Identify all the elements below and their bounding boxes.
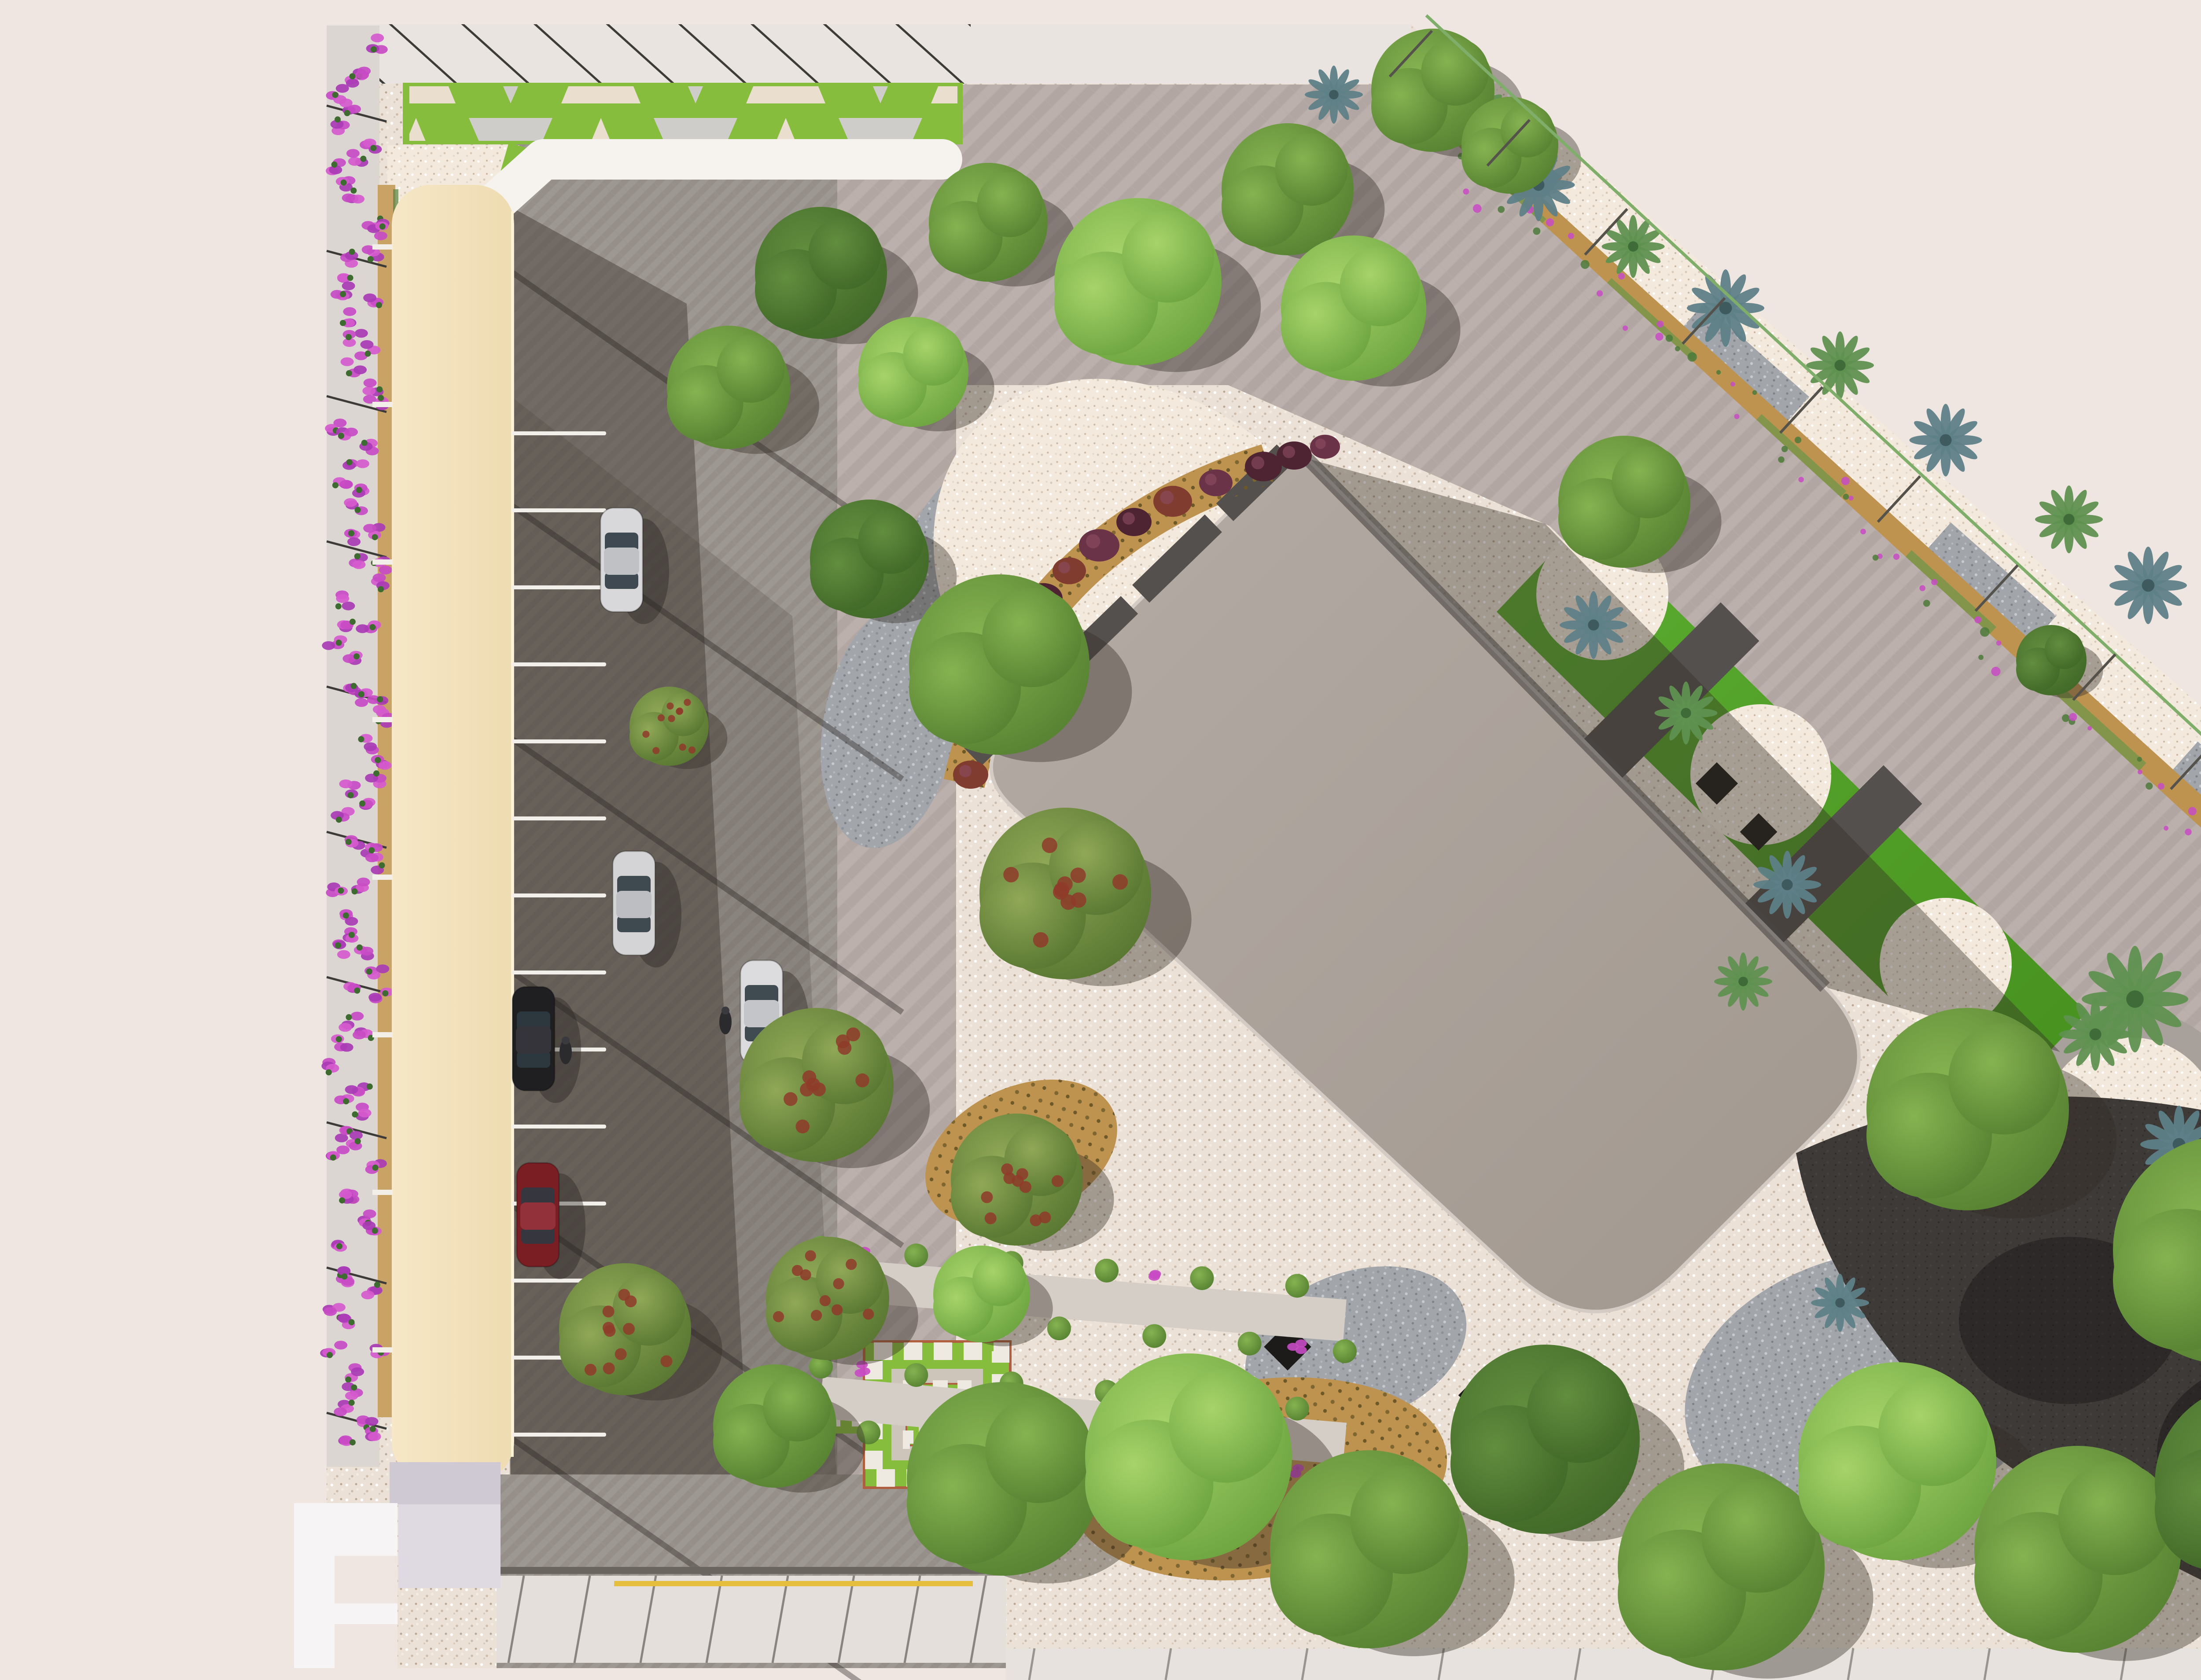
tree-red [766,1237,889,1360]
maroon-shrub-highlight [1251,456,1264,469]
tree-canopy-lobe [1122,211,1214,303]
tree-canopy-lobe [1948,1023,2060,1135]
leaf [356,487,362,493]
leaf [339,1197,345,1203]
maroon-shrub [1053,558,1086,585]
flower [340,480,353,489]
strip-flower [1568,233,1574,239]
flower [350,1012,364,1021]
crosswalk-curb [497,1567,1006,1574]
maroon-shrub [1277,441,1312,470]
flower [373,573,386,582]
canopy-post [372,1032,393,1037]
tree-bright [1798,1362,1996,1560]
flower [324,1307,337,1316]
tree-canopy-lobe [977,172,1042,237]
leaf [354,988,360,994]
red-bloom [833,1278,844,1289]
leaf [348,530,354,537]
tree-mid [1461,97,1558,194]
strip-flower [1991,667,2000,676]
flower [322,641,335,650]
flower [345,1391,358,1400]
leaf [341,180,347,186]
leaf [335,942,341,948]
flower [334,1408,347,1416]
red-bloom [1071,868,1086,883]
tree-mid [1618,1463,1825,1670]
tree-mid [1270,1450,1468,1648]
leaf [350,187,357,194]
red-bloom [855,1073,869,1088]
tree-red [979,808,1151,979]
strip-flower [2062,714,2069,722]
strip-flower [1463,188,1469,195]
flower [341,357,354,366]
strip-flower [1843,494,1849,500]
strip-flower [1798,477,1804,482]
canopy-post [372,717,393,722]
agave-core [1781,879,1792,890]
maroon-shrub-highlight [1086,534,1100,548]
leaf [366,968,372,974]
path-flower [854,1369,866,1377]
stall-line [512,662,606,666]
leaf [353,653,360,659]
strip-flower [1931,579,1937,585]
strip-flower [1841,477,1850,485]
strip-flower [1581,260,1590,269]
leaf [357,945,363,951]
red-bloom [1033,932,1049,948]
leaf [343,1098,349,1104]
flower [346,149,360,158]
red-bloom [981,1191,993,1203]
tree-mid [1974,1446,2181,1653]
leaf [352,1111,358,1118]
canopy-post [372,1190,393,1195]
tree-bright [1054,198,1222,365]
leaf [345,1376,351,1382]
tree-red [740,1008,894,1162]
tree-canopy-lobe [1527,1359,1631,1463]
canopy-post [372,244,393,250]
strip-flower [2185,829,2191,835]
flower [343,307,356,316]
strip-flower [1752,390,1757,395]
car-roof [604,548,639,575]
leaf [370,1426,376,1432]
strip-flower [1498,206,1505,213]
strip-flower [1980,627,1990,637]
tree-bright [1281,235,1426,381]
flower [336,594,349,603]
tree-canopy-lobe [809,217,881,290]
leaf [338,888,344,894]
red-bloom [985,1213,997,1224]
agave-core [1329,90,1339,99]
strip-flower [2069,713,2077,721]
path-shrub [1333,1339,1357,1363]
car-roof [616,891,651,918]
red-bloom [615,1348,627,1360]
stall-line [512,508,606,512]
path-shrub [1095,1259,1119,1283]
leaf [359,801,365,807]
strip-flower [1849,496,1854,500]
flower [368,993,382,1002]
pedestrian-head [562,1037,570,1044]
maroon-shrub-highlight [1205,474,1217,485]
leaf [377,696,383,702]
south-sidewalk [1006,1648,2201,1680]
leaf [347,792,353,798]
leaf [370,145,376,151]
strip-flower [1666,335,1673,342]
leaf [355,507,361,513]
tree-dark [1450,1345,1640,1534]
tree-canopy-lobe [662,693,705,736]
flower [363,294,376,302]
flower [368,1432,381,1441]
flower [345,428,358,437]
tree-canopy-lobe [1340,246,1420,327]
path-shrub [1047,1316,1071,1340]
path-shrub [1190,1266,1214,1290]
leaf [335,116,341,122]
flower [364,743,377,751]
strip-flower [1473,204,1482,213]
leaf [376,386,383,393]
leaf [326,1069,332,1075]
leaf [327,1352,333,1358]
canopy-post [372,402,393,407]
red-bloom [684,699,691,706]
leaf [382,990,388,996]
tree-canopy-lobe [2058,1461,2172,1575]
flower [352,560,365,569]
maroon-shrub [1116,508,1152,536]
strip-flower [1781,446,1788,452]
strip-flower [2087,726,2092,731]
strip-flower [2137,757,2142,761]
stall-line [512,431,606,435]
maroon-shrub-highlight [1160,491,1174,504]
leaf [344,110,350,116]
lattice-lawn-band-pattern [409,86,957,141]
agave-core [2142,579,2155,592]
red-bloom [846,1259,857,1270]
leaf [379,224,386,230]
agave-core [2063,514,2074,525]
strip-flower [1919,585,1925,592]
strip-flower [1873,555,1879,561]
tree-red [629,687,709,766]
leaf [335,603,342,610]
strip-flower [1546,218,1554,226]
red-bloom [863,1309,874,1320]
leaf [336,1036,342,1042]
red-bloom [642,731,649,738]
agave-core [2126,990,2144,1008]
path-shrub [1285,1274,1309,1298]
tree-red [951,1114,1083,1246]
leaf [340,291,346,297]
canopy-post [372,559,393,565]
leaf [372,534,378,540]
tree-bright [858,317,968,427]
leaf [368,256,374,262]
leaf [355,1138,361,1144]
tree-mid [1866,1008,2069,1210]
leaf [349,932,355,938]
red-bloom [792,1265,803,1276]
leaf [371,46,377,52]
flower [356,70,369,79]
leaf [354,553,361,559]
path-shrub [1142,1324,1166,1348]
strip-flower [1675,346,1680,351]
tree-canopy-lobe [1612,446,1685,518]
flower [340,1043,353,1052]
leaf [374,1282,380,1288]
leaf [372,1165,379,1171]
flower [345,1085,358,1094]
maroon-shrub-highlight [959,765,972,777]
canopy-roof [392,185,514,1481]
strip-flower [2158,783,2164,790]
flower [364,379,377,387]
red-bloom [603,1305,615,1317]
agave-core [1738,977,1748,986]
flower [348,157,361,166]
leaf [373,770,379,776]
maroon-shrub [1079,529,1119,562]
strip-flower [1655,333,1663,341]
stall-line [512,893,606,897]
tree-canopy-lobe [763,1374,831,1441]
flower [339,779,352,788]
path-shrub [904,1363,928,1387]
leaf [351,683,357,689]
red-bloom [1004,1172,1016,1184]
maroon-shrub-highlight [1058,562,1070,573]
flower [339,1023,352,1032]
stall-line [512,585,606,589]
red-bloom [676,708,683,715]
strip-flower [1860,529,1866,534]
flower [342,282,355,290]
leaf [331,162,338,168]
maroon-shrub [1310,435,1340,459]
leaf [340,320,346,326]
red-bloom [812,1082,826,1096]
leaf [376,302,382,308]
tree-canopy-lobe [717,335,784,403]
agave-core [1588,619,1599,630]
site-plan-canvas [0,0,2201,1680]
tree-dark [755,207,887,339]
red-bloom [1053,884,1068,900]
tree-dark [2016,625,2087,695]
leaf [360,156,366,162]
maroon-shrub [1199,470,1233,496]
maroon-shrub [1153,486,1192,517]
flower [355,329,368,338]
leaf [346,1014,352,1020]
leaf [368,847,375,853]
strip-flower [2164,826,2168,831]
yellow-marking [614,1581,973,1586]
strip-flower [2138,770,2142,775]
path-shrub [904,1243,928,1267]
agave-core [1628,241,1638,251]
tree-canopy-lobe [1275,133,1348,206]
strip-flower [1978,655,1984,660]
leaf [346,839,352,845]
strip-flower [1618,273,1625,279]
leaf [350,619,356,625]
leaf [349,1400,355,1406]
red-bloom [623,1323,635,1335]
tree-mid [667,326,790,449]
flower [371,33,384,42]
tree-red [559,1263,691,1395]
path-flower [1296,1346,1307,1354]
tree-canopy-lobe [2045,630,2083,669]
flower [347,537,361,546]
leaf [351,1384,357,1390]
red-bloom [585,1364,596,1376]
leaf [341,1273,347,1279]
flower [344,498,357,507]
strip-flower [1730,382,1735,386]
red-bloom [666,702,674,709]
strip-flower [1734,414,1740,419]
tree-mid [929,163,1048,282]
red-bloom [603,1362,615,1374]
leaf [336,640,342,646]
leaf [350,73,356,79]
leaf [358,691,364,697]
flower [337,950,350,959]
leaf [367,1084,373,1090]
flower [363,524,376,533]
leaf [361,440,368,446]
tree-bright [1085,1353,1292,1560]
maroon-shrub-highlight [1315,438,1326,449]
agave-core [1940,434,1952,446]
strip-flower [1778,456,1785,463]
red-bloom [668,715,675,722]
strip-flower [1716,370,1721,375]
tree-canopy-lobe [1501,104,1554,158]
flower [374,232,387,240]
canopy-post [372,875,393,880]
flower [362,386,375,395]
tree-canopy-lobe [1421,38,1489,106]
stall-line [512,1125,606,1129]
tree-canopy-lobe [1350,1465,1459,1574]
flower [356,460,369,468]
red-bloom [784,1092,798,1106]
tree-canopy-lobe [1878,1377,1988,1486]
red-bloom [820,1295,831,1306]
stall-line [512,816,606,820]
flower [334,1341,347,1349]
tree-mid [909,574,1089,755]
red-bloom [688,746,696,754]
flower [356,624,369,633]
maroon-shrub-highlight [1283,446,1295,458]
landscape-site-plan: Blossom FLOWERS LANDSCAPING [0,0,2201,1680]
flower [357,878,370,886]
strip-flower [1687,352,1697,361]
tree-canopy-lobe [972,1253,1026,1306]
red-bloom [1039,1212,1051,1224]
leaf [332,92,339,98]
red-bloom [679,744,686,751]
red-bloom [1042,838,1057,853]
tree-canopy-lobe [1701,1479,1815,1593]
strip-flower [1923,600,1930,607]
path-shrub [1238,1332,1262,1356]
strip-flower [2188,807,2197,815]
leaf [375,757,381,763]
red-bloom [1052,1175,1064,1187]
agave-core [1835,1298,1845,1308]
flower [360,340,373,349]
flower [379,566,392,574]
red-bloom [832,1304,843,1315]
leaf [372,1228,378,1234]
flower [363,1209,376,1218]
tree-mid [1222,123,1354,255]
red-bloom [805,1250,816,1261]
flower [361,1290,374,1299]
tree-canopy-lobe [1169,1369,1283,1483]
flower [351,1368,364,1376]
tree-mid [907,1382,1100,1576]
tree-bright [933,1246,1030,1342]
strip-flower [1623,325,1628,331]
strip-flower [1597,290,1603,297]
car-roof [520,1202,556,1230]
red-bloom [652,747,659,754]
leaf [350,1439,356,1445]
tree-canopy-lobe [985,1397,1092,1503]
leaf [332,482,339,488]
tree-canopy-lobe [982,588,1082,687]
tree-mid [1558,436,1690,568]
flower [336,84,349,93]
flower [358,1109,372,1118]
red-bloom [618,1289,630,1301]
stall-line [512,971,606,974]
leaf [378,586,384,592]
red-bloom [1071,892,1086,908]
leaf [346,459,353,465]
strip-flower [1974,616,1981,623]
red-bloom [1003,867,1019,882]
strip-flower [1996,640,2002,646]
red-bloom [1112,874,1128,890]
path-flower [1148,1273,1160,1281]
strip-flower [1533,228,1540,235]
car-roof [516,1026,551,1054]
stall-line [512,739,606,743]
leaf [352,888,358,894]
